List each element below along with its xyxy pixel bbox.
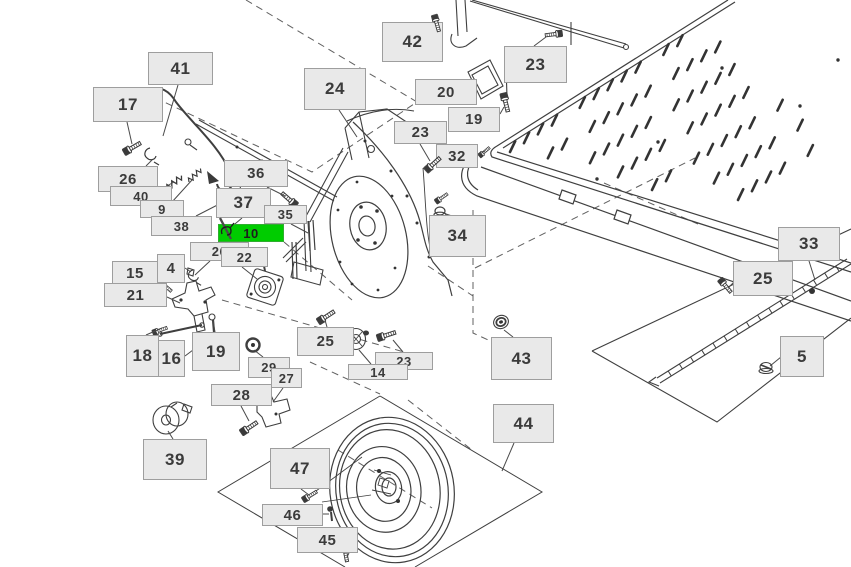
part-callout-28[interactable]: 28 — [211, 384, 272, 406]
part-callout-14[interactable]: 14 — [348, 364, 408, 380]
part-callout-37[interactable]: 37 — [216, 188, 271, 218]
part-callout-17[interactable]: 17 — [93, 87, 163, 122]
part-callout-21[interactable]: 21 — [104, 283, 167, 307]
part-callout-47[interactable]: 47 — [270, 448, 330, 489]
part-callout-16[interactable]: 16 — [158, 340, 185, 377]
part-callout-42[interactable]: 42 — [382, 22, 443, 62]
part-callout-20[interactable]: 20 — [415, 79, 477, 105]
part-callout-32[interactable]: 32 — [436, 144, 478, 168]
part-callout-5[interactable]: 5 — [780, 336, 824, 377]
part-callout-22[interactable]: 22 — [221, 247, 268, 267]
part-callout-41[interactable]: 41 — [148, 52, 213, 85]
part-callout-46[interactable]: 46 — [262, 504, 323, 526]
part-callout-33[interactable]: 33 — [778, 227, 840, 261]
part-callout-25b[interactable]: 25 — [733, 261, 793, 296]
part-callout-44[interactable]: 44 — [493, 404, 554, 443]
part-callout-43[interactable]: 43 — [491, 337, 552, 380]
part-callout-4[interactable]: 4 — [157, 254, 185, 283]
part-callout-24[interactable]: 24 — [304, 68, 366, 110]
part-callout-27[interactable]: 27 — [271, 368, 302, 388]
part-callout-10[interactable]: 10 — [218, 224, 284, 242]
part-callout-23a[interactable]: 23 — [504, 46, 567, 83]
parts-diagram-stage: 4117264093836373510262241521181619292728… — [0, 0, 851, 567]
part-callout-34[interactable]: 34 — [429, 215, 486, 257]
callout-layer: 4117264093836373510262241521181619292728… — [0, 0, 851, 567]
part-callout-23b[interactable]: 23 — [394, 121, 447, 144]
part-callout-19a[interactable]: 19 — [192, 332, 240, 371]
part-callout-18[interactable]: 18 — [126, 335, 159, 377]
part-callout-39[interactable]: 39 — [143, 439, 207, 480]
part-callout-36[interactable]: 36 — [224, 160, 288, 187]
part-callout-38[interactable]: 38 — [151, 216, 212, 236]
part-callout-35[interactable]: 35 — [264, 205, 307, 224]
part-callout-25a[interactable]: 25 — [297, 327, 354, 356]
part-callout-45[interactable]: 45 — [297, 527, 358, 553]
part-callout-19b[interactable]: 19 — [448, 107, 500, 132]
